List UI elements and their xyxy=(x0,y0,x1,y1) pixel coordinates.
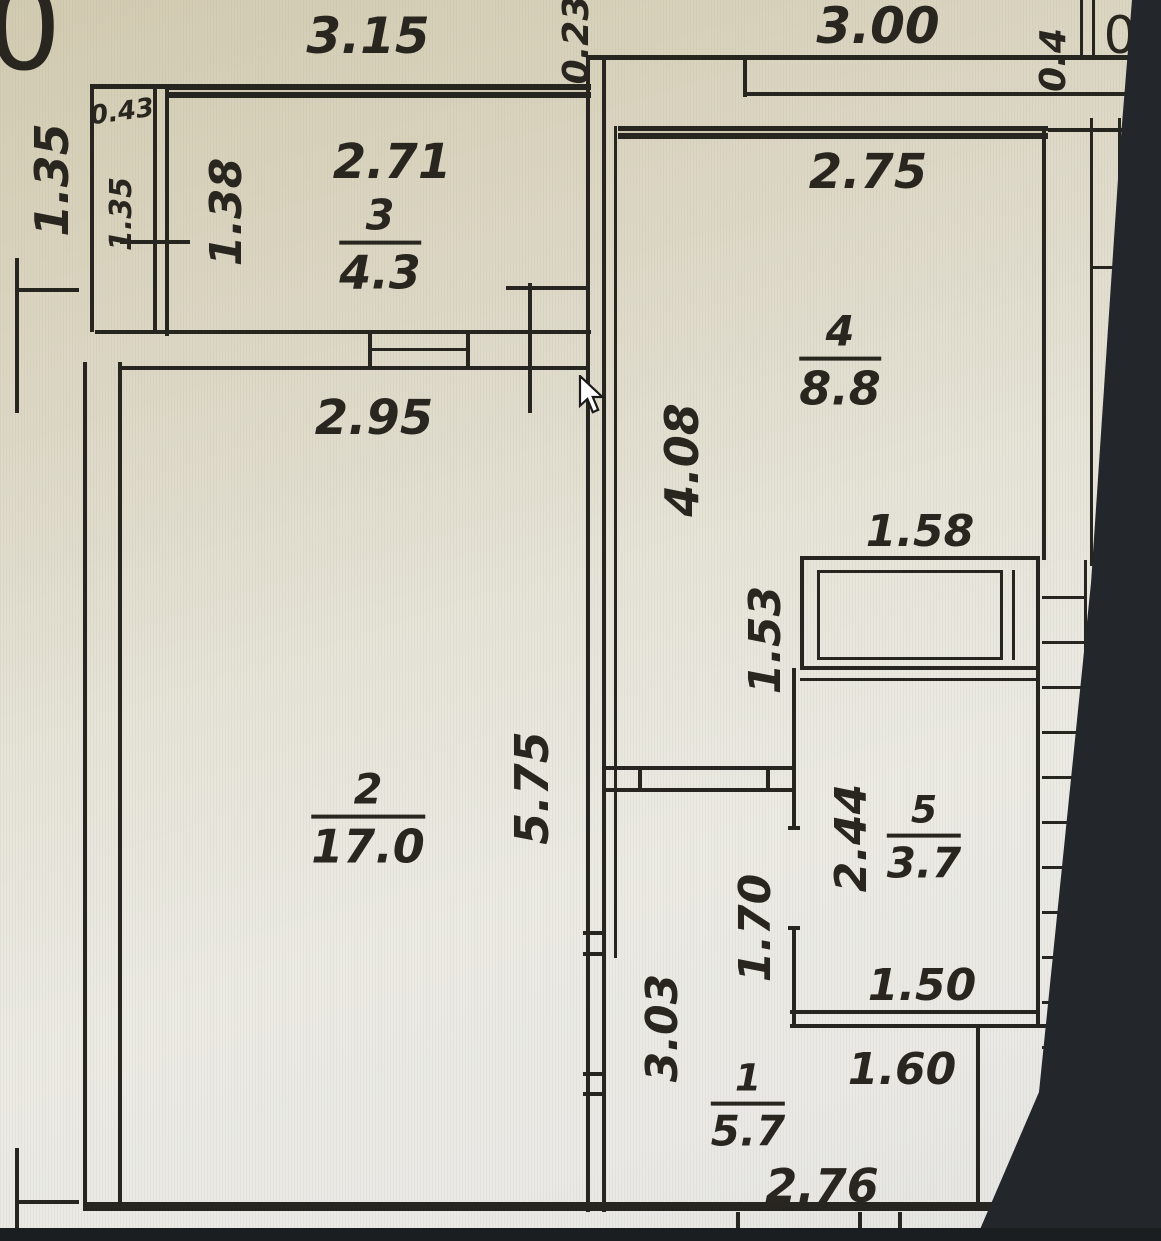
dim-room2-height: 5.75 xyxy=(509,731,555,845)
wall-stub xyxy=(1080,0,1083,58)
party-wall xyxy=(586,55,590,1212)
mouse-cursor xyxy=(578,375,606,417)
room-area: 3.7 xyxy=(887,841,961,885)
outer-wall xyxy=(1090,118,1093,566)
wall xyxy=(165,84,169,336)
dim-duct-width: 1.58 xyxy=(866,510,975,554)
room-number: 4 xyxy=(826,311,855,354)
door-jamb xyxy=(766,766,770,792)
dim-room5-offset-top: 1.53 xyxy=(744,586,788,695)
fraction-line xyxy=(887,833,961,837)
bottom-wall xyxy=(83,1202,1045,1211)
photo-dark-edge-bottom xyxy=(0,1228,1161,1241)
room1-label: 1 5.7 xyxy=(711,1059,785,1154)
wall-highlight xyxy=(165,90,591,92)
floor-plan: 0 3.15 0.23 3.00 0.4 0 1.35 0.43 1.35 2.… xyxy=(0,0,1161,1241)
wall xyxy=(1036,556,1040,1028)
dim-room5-width: 1.50 xyxy=(868,964,977,1008)
dim-room1-inner-width: 1.60 xyxy=(848,1048,957,1092)
door-jamb xyxy=(638,766,642,792)
room2-label: 2 17.0 xyxy=(311,769,425,872)
room-number: 2 xyxy=(354,769,383,812)
dim-room5-door-offset: 1.70 xyxy=(734,874,778,983)
wall xyxy=(1042,126,1046,560)
wall xyxy=(95,330,591,334)
wall xyxy=(118,362,122,1210)
dim-wall-gap: 0.23 xyxy=(559,0,595,84)
room3-label: 3 4.3 xyxy=(339,195,421,298)
wall-stub xyxy=(1092,0,1095,58)
room-area: 5.7 xyxy=(711,1109,785,1153)
dim-room3-width: 2.71 xyxy=(333,138,451,186)
dimension-tick xyxy=(528,283,532,413)
room-area: 8.8 xyxy=(799,365,881,413)
door-jamb xyxy=(583,931,605,935)
dim-shaft-width: 0.43 xyxy=(88,95,155,130)
fraction-line xyxy=(339,241,421,245)
dim-room1-bottom-width: 2.76 xyxy=(765,1163,879,1209)
balcony-window-line xyxy=(743,92,1140,96)
door-jamb xyxy=(583,1072,605,1076)
wall xyxy=(800,678,1036,681)
wall xyxy=(90,84,169,89)
fraction-line xyxy=(799,357,881,361)
hall-wall xyxy=(976,1026,980,1206)
partial-digit-left: 0 xyxy=(0,0,62,87)
dim-room4-height: 4.08 xyxy=(659,403,705,517)
room-area: 4.3 xyxy=(339,249,421,297)
wall xyxy=(83,362,87,1210)
dim-right-stub: 0.4 xyxy=(1036,28,1072,92)
dimension-tick xyxy=(15,288,79,292)
dim-room4-width: 2.75 xyxy=(809,148,927,196)
party-wall xyxy=(602,55,606,1212)
duct-wall xyxy=(800,556,804,670)
bathroom-wall xyxy=(790,1024,1046,1028)
dimension-tick xyxy=(15,1200,79,1204)
dim-room5-height: 2.44 xyxy=(830,784,874,893)
door-jamb xyxy=(788,926,800,930)
wall xyxy=(118,366,590,370)
balcony-mullion xyxy=(743,55,747,97)
dim-room2-width: 2.95 xyxy=(315,394,433,442)
bathroom-wall xyxy=(792,668,796,830)
wall-highlight xyxy=(618,131,1048,133)
fraction-line xyxy=(311,815,425,819)
room-number: 1 xyxy=(735,1059,761,1099)
dim-top-left-width: 3.15 xyxy=(306,11,429,61)
dim-room3-height: 1.38 xyxy=(205,158,249,267)
room-number: 5 xyxy=(911,791,937,831)
outer-wall xyxy=(15,1148,19,1232)
duct-inner-box xyxy=(817,570,1003,660)
room4-label: 4 8.8 xyxy=(799,311,881,414)
door-jamb xyxy=(583,1092,605,1096)
outer-wall xyxy=(15,258,19,413)
window-midline xyxy=(368,348,470,351)
dimension-tick xyxy=(506,286,586,290)
room5-label: 5 3.7 xyxy=(887,791,961,886)
duct-divider xyxy=(1012,570,1015,660)
dim-top-right-width: 3.00 xyxy=(816,1,939,51)
corridor-wall xyxy=(604,766,792,770)
duct-wall xyxy=(800,666,1040,670)
room-number: 3 xyxy=(366,195,395,238)
room-area: 17.0 xyxy=(311,823,425,871)
dim-shaft-height: 1.35 xyxy=(107,177,137,251)
fraction-line xyxy=(711,1101,785,1105)
dim-room1-height: 3.03 xyxy=(641,974,685,1083)
dim-left-height: 1.35 xyxy=(29,123,75,237)
wall xyxy=(614,126,617,958)
door-jamb xyxy=(788,826,800,830)
door-jamb xyxy=(583,952,605,956)
corridor-wall xyxy=(604,788,792,792)
